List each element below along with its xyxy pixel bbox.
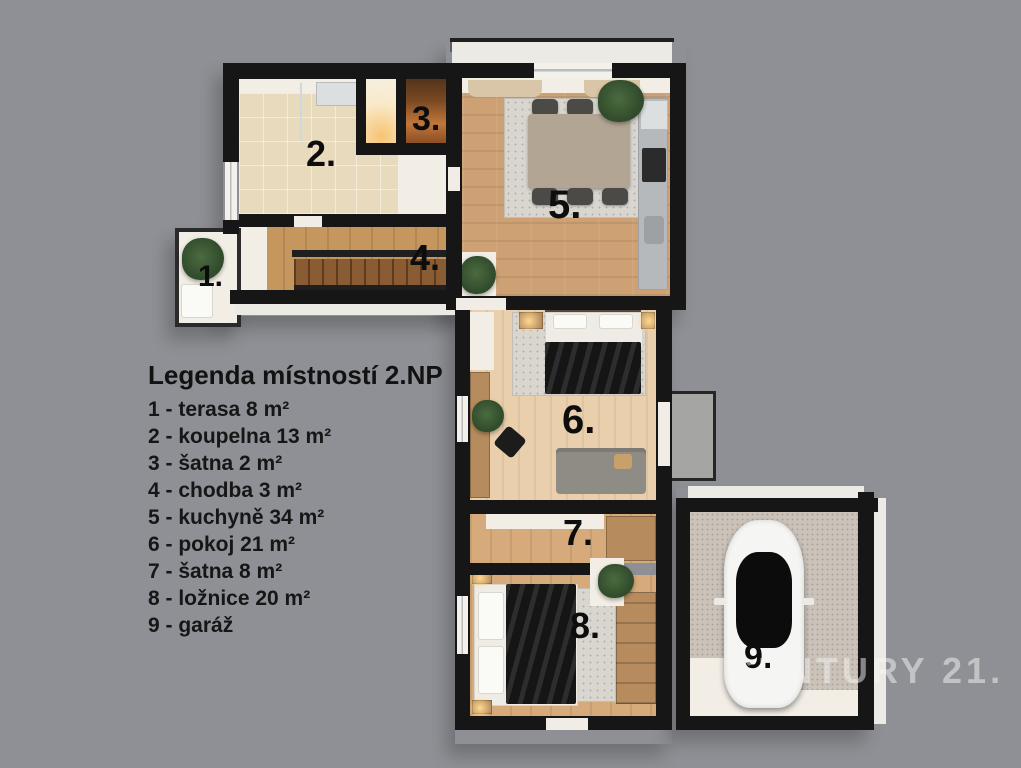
window-room8 bbox=[457, 596, 468, 654]
ledge-block-a bbox=[235, 304, 463, 315]
bed6-blanket bbox=[545, 342, 641, 394]
sofa-room6 bbox=[556, 448, 646, 494]
dresser-room7 bbox=[606, 516, 656, 561]
legend-item-6: 6 - pokoj 21 m² bbox=[148, 531, 331, 558]
legend-item-7: 7 - šatna 8 m² bbox=[148, 558, 331, 585]
dining-chair bbox=[602, 188, 628, 205]
wall-garage-bottom bbox=[676, 716, 874, 730]
lamp-glow bbox=[516, 308, 542, 334]
room-number-6: 6. bbox=[562, 400, 595, 440]
bed6-pillow bbox=[599, 314, 633, 329]
legend-item-4: 4 - chodba 3 m² bbox=[148, 477, 331, 504]
legend-item-3: 3 - šatna 2 m² bbox=[148, 450, 331, 477]
desk-room6 bbox=[470, 372, 490, 498]
garage-top-face bbox=[688, 486, 864, 498]
hall-lower bbox=[398, 155, 446, 214]
balcony-room6 bbox=[668, 391, 716, 481]
wall-garage-left bbox=[676, 498, 690, 730]
door-room2 bbox=[294, 216, 322, 227]
legend-item-1: 1 - terasa 8 m² bbox=[148, 396, 331, 423]
car-mirror-left bbox=[714, 598, 726, 605]
legend-list: 1 - terasa 8 m² 2 - koupelna 13 m² 3 - š… bbox=[148, 396, 331, 639]
room-number-2: 2. bbox=[306, 136, 336, 172]
floorplan-image: Legenda místností 2.NP 1 - terasa 8 m² 2… bbox=[0, 0, 1021, 768]
room-number-1: 1. bbox=[198, 262, 223, 292]
legend-item-8: 8 - ložnice 20 m² bbox=[148, 585, 331, 612]
century21-watermark: CENTURY 21. bbox=[728, 650, 1004, 692]
wall-room2-room4 bbox=[239, 214, 459, 227]
legend-item-9: 9 - garáž bbox=[148, 612, 331, 639]
shower-glass bbox=[300, 83, 302, 141]
wall-b-right bbox=[670, 63, 686, 310]
wall-d-right bbox=[656, 514, 672, 730]
bed8-pillow bbox=[478, 646, 504, 694]
door-room8-exterior bbox=[546, 718, 588, 730]
room-number-5: 5. bbox=[548, 185, 581, 225]
dresser-room8 bbox=[616, 592, 656, 704]
bed6-pillow bbox=[553, 314, 587, 329]
dining-table bbox=[528, 114, 630, 188]
car-mirror-right bbox=[802, 598, 814, 605]
window-room6 bbox=[457, 396, 468, 442]
wall-garage-right bbox=[858, 492, 874, 730]
bed8-blanket bbox=[506, 584, 576, 704]
car-roof-glass bbox=[736, 552, 792, 648]
bathroom-vanity bbox=[316, 82, 358, 106]
wall-a-bottom bbox=[230, 290, 462, 304]
room-koupelna-ext bbox=[356, 155, 398, 214]
wall-room7-room8 bbox=[462, 563, 590, 575]
sofa-pillow bbox=[614, 454, 632, 469]
wall-a-left-upper bbox=[223, 63, 239, 162]
wall-garage-top bbox=[676, 498, 878, 512]
room-number-4: 4. bbox=[410, 240, 440, 276]
door-hall-kitchen bbox=[448, 167, 460, 191]
kitchen-sink bbox=[644, 216, 664, 244]
wall-hall-right bbox=[396, 75, 406, 143]
legend-item-2: 2 - koupelna 13 m² bbox=[148, 423, 331, 450]
legend-item-5: 5 - kuchyně 34 m² bbox=[148, 504, 331, 531]
room-number-7: 7. bbox=[563, 515, 593, 551]
wall-hall-left bbox=[356, 75, 366, 143]
room-number-3: 3. bbox=[412, 102, 440, 136]
pokoj-closet bbox=[470, 312, 494, 370]
legend-title: Legenda místností 2.NP bbox=[148, 360, 443, 391]
wall-a-left-lower bbox=[223, 220, 239, 234]
fridge bbox=[640, 100, 668, 130]
hall-upper bbox=[366, 79, 396, 143]
door-balcony bbox=[658, 402, 670, 466]
balcony-top-floor bbox=[452, 42, 672, 64]
bed8-pillow bbox=[478, 592, 504, 640]
room-number-8: 8. bbox=[570, 608, 600, 644]
curtain-left bbox=[468, 80, 542, 97]
window-kitchen-top bbox=[534, 63, 612, 78]
chodba-landing bbox=[239, 227, 267, 290]
stove bbox=[642, 148, 666, 182]
wall-b-top-left bbox=[446, 63, 534, 78]
window-room2 bbox=[225, 162, 237, 220]
wall-a-top bbox=[223, 63, 458, 79]
door-room6 bbox=[456, 298, 506, 310]
